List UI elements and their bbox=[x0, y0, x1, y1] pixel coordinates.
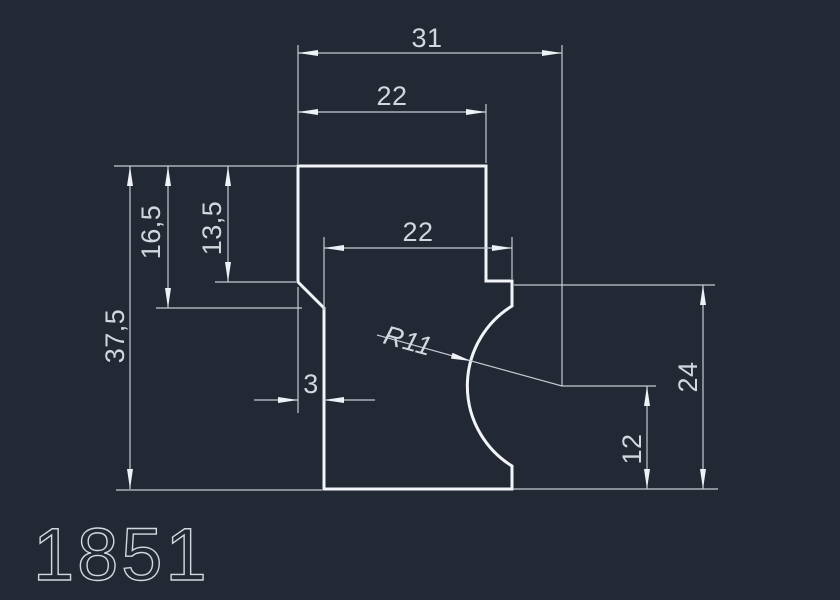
arrowhead bbox=[466, 109, 486, 115]
arrowhead bbox=[127, 469, 133, 489]
arrowhead bbox=[127, 166, 133, 186]
arrowhead bbox=[225, 262, 231, 282]
arrowhead bbox=[324, 245, 344, 251]
dim-chamfer-width-label: 3 bbox=[303, 369, 319, 399]
dim-right-height-label: 24 bbox=[673, 361, 703, 392]
arrowhead bbox=[542, 50, 562, 56]
dimension-labels-group: 31 22 22 3 37,5 16,5 13,5 24 12 R11 bbox=[100, 23, 703, 465]
arrowhead bbox=[165, 166, 171, 186]
arrowhead bbox=[298, 50, 318, 56]
dim-arc-radius-label: R11 bbox=[380, 320, 435, 362]
dim-left-lower-depth-label: 16,5 bbox=[136, 205, 166, 260]
arrowhead bbox=[298, 109, 318, 115]
arrowhead bbox=[324, 397, 344, 403]
dim-left-upper-depth-label: 13,5 bbox=[197, 201, 227, 256]
radius-leader-arrowhead bbox=[451, 353, 471, 361]
part-number-label: 1851 bbox=[33, 513, 210, 596]
dim-overall-width-label: 31 bbox=[411, 23, 442, 53]
arrowhead bbox=[278, 397, 298, 403]
dim-overall-height-label: 37,5 bbox=[100, 309, 130, 364]
arrowheads-group bbox=[127, 50, 706, 489]
arrowhead bbox=[700, 469, 706, 489]
dim-top-width-label: 22 bbox=[376, 81, 407, 111]
arrowhead bbox=[644, 469, 650, 489]
dim-arc-center-height-label: 12 bbox=[617, 433, 647, 464]
cad-drawing-canvas: 31 22 22 3 37,5 16,5 13,5 24 12 R11 1851 bbox=[0, 0, 840, 600]
arrowhead bbox=[492, 245, 512, 251]
arrowhead bbox=[644, 386, 650, 406]
arrowhead bbox=[225, 166, 231, 186]
dim-body-width-label: 22 bbox=[402, 217, 433, 247]
arrowhead bbox=[165, 288, 171, 308]
arrowhead bbox=[700, 285, 706, 305]
dimension-lines-group bbox=[114, 45, 718, 490]
technical-drawing: 31 22 22 3 37,5 16,5 13,5 24 12 R11 1851 bbox=[0, 0, 840, 600]
